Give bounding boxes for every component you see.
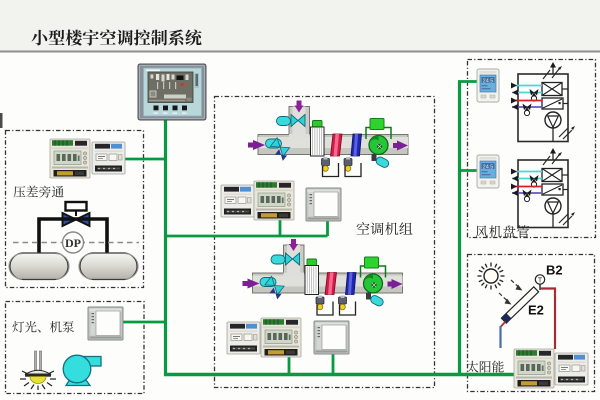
- svg-text:DP: DP: [65, 236, 81, 250]
- svg-text:太阳能: 太阳能: [466, 357, 505, 376]
- svg-text:风机盘管: 风机盘管: [475, 222, 530, 241]
- svg-text:压差旁通: 压差旁通: [13, 182, 64, 201]
- svg-text:T: T: [538, 278, 543, 285]
- svg-text:空调机组: 空调机组: [356, 219, 413, 239]
- svg-text:E2: E2: [528, 303, 544, 318]
- svg-text:小型楼宇空调控制系统: 小型楼宇空调控制系统: [31, 24, 202, 49]
- svg-text:灯光、机泵: 灯光、机泵: [12, 318, 75, 336]
- svg-text:B2: B2: [546, 263, 563, 278]
